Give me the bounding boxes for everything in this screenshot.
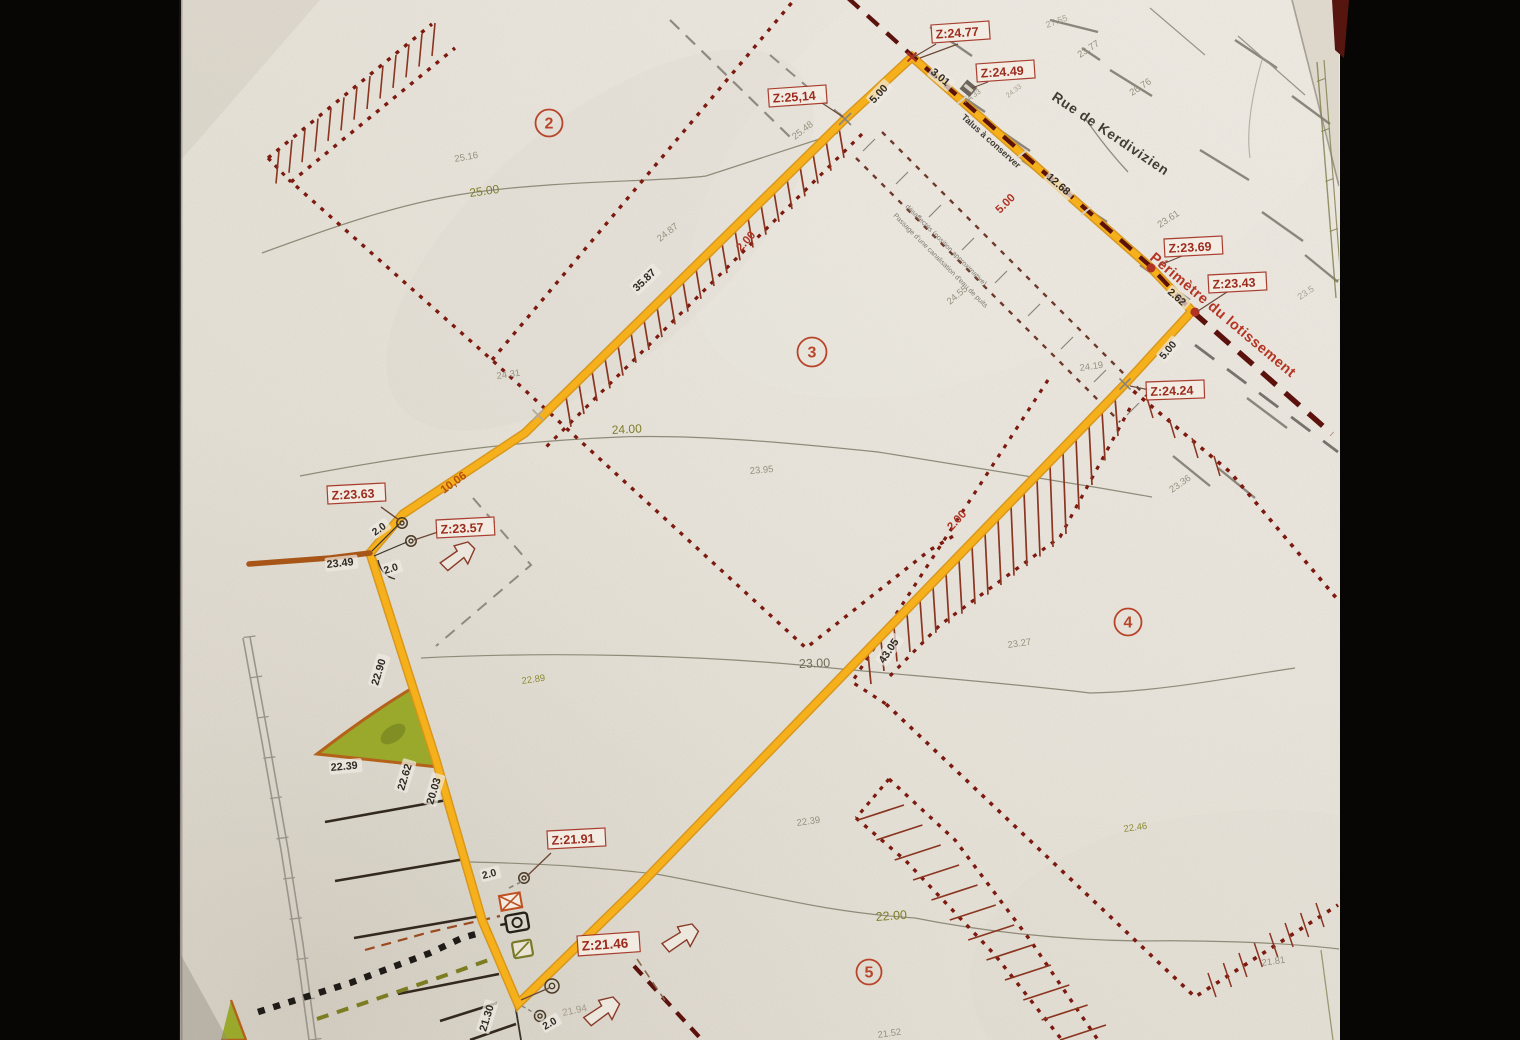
svg-text:Z:23.63: Z:23.63 xyxy=(331,487,375,503)
svg-text:22.00: 22.00 xyxy=(875,908,907,924)
svg-text:24.00: 24.00 xyxy=(611,421,642,437)
svg-text:Z:23.57: Z:23.57 xyxy=(440,521,484,537)
svg-text:Z:23.69: Z:23.69 xyxy=(1168,240,1212,256)
svg-text:4: 4 xyxy=(1124,615,1133,632)
svg-text:5: 5 xyxy=(865,965,874,982)
svg-text:Z:21.91: Z:21.91 xyxy=(551,832,595,848)
svg-text:2: 2 xyxy=(545,116,554,133)
svg-text:23.00: 23.00 xyxy=(799,656,831,671)
svg-text:22.39: 22.39 xyxy=(330,760,358,774)
svg-text:Z:24.24: Z:24.24 xyxy=(1150,383,1194,398)
svg-text:3: 3 xyxy=(808,345,817,362)
svg-text:21.52: 21.52 xyxy=(877,1027,902,1040)
svg-text:Z:23.43: Z:23.43 xyxy=(1212,276,1256,292)
svg-text:23.95: 23.95 xyxy=(749,464,774,477)
